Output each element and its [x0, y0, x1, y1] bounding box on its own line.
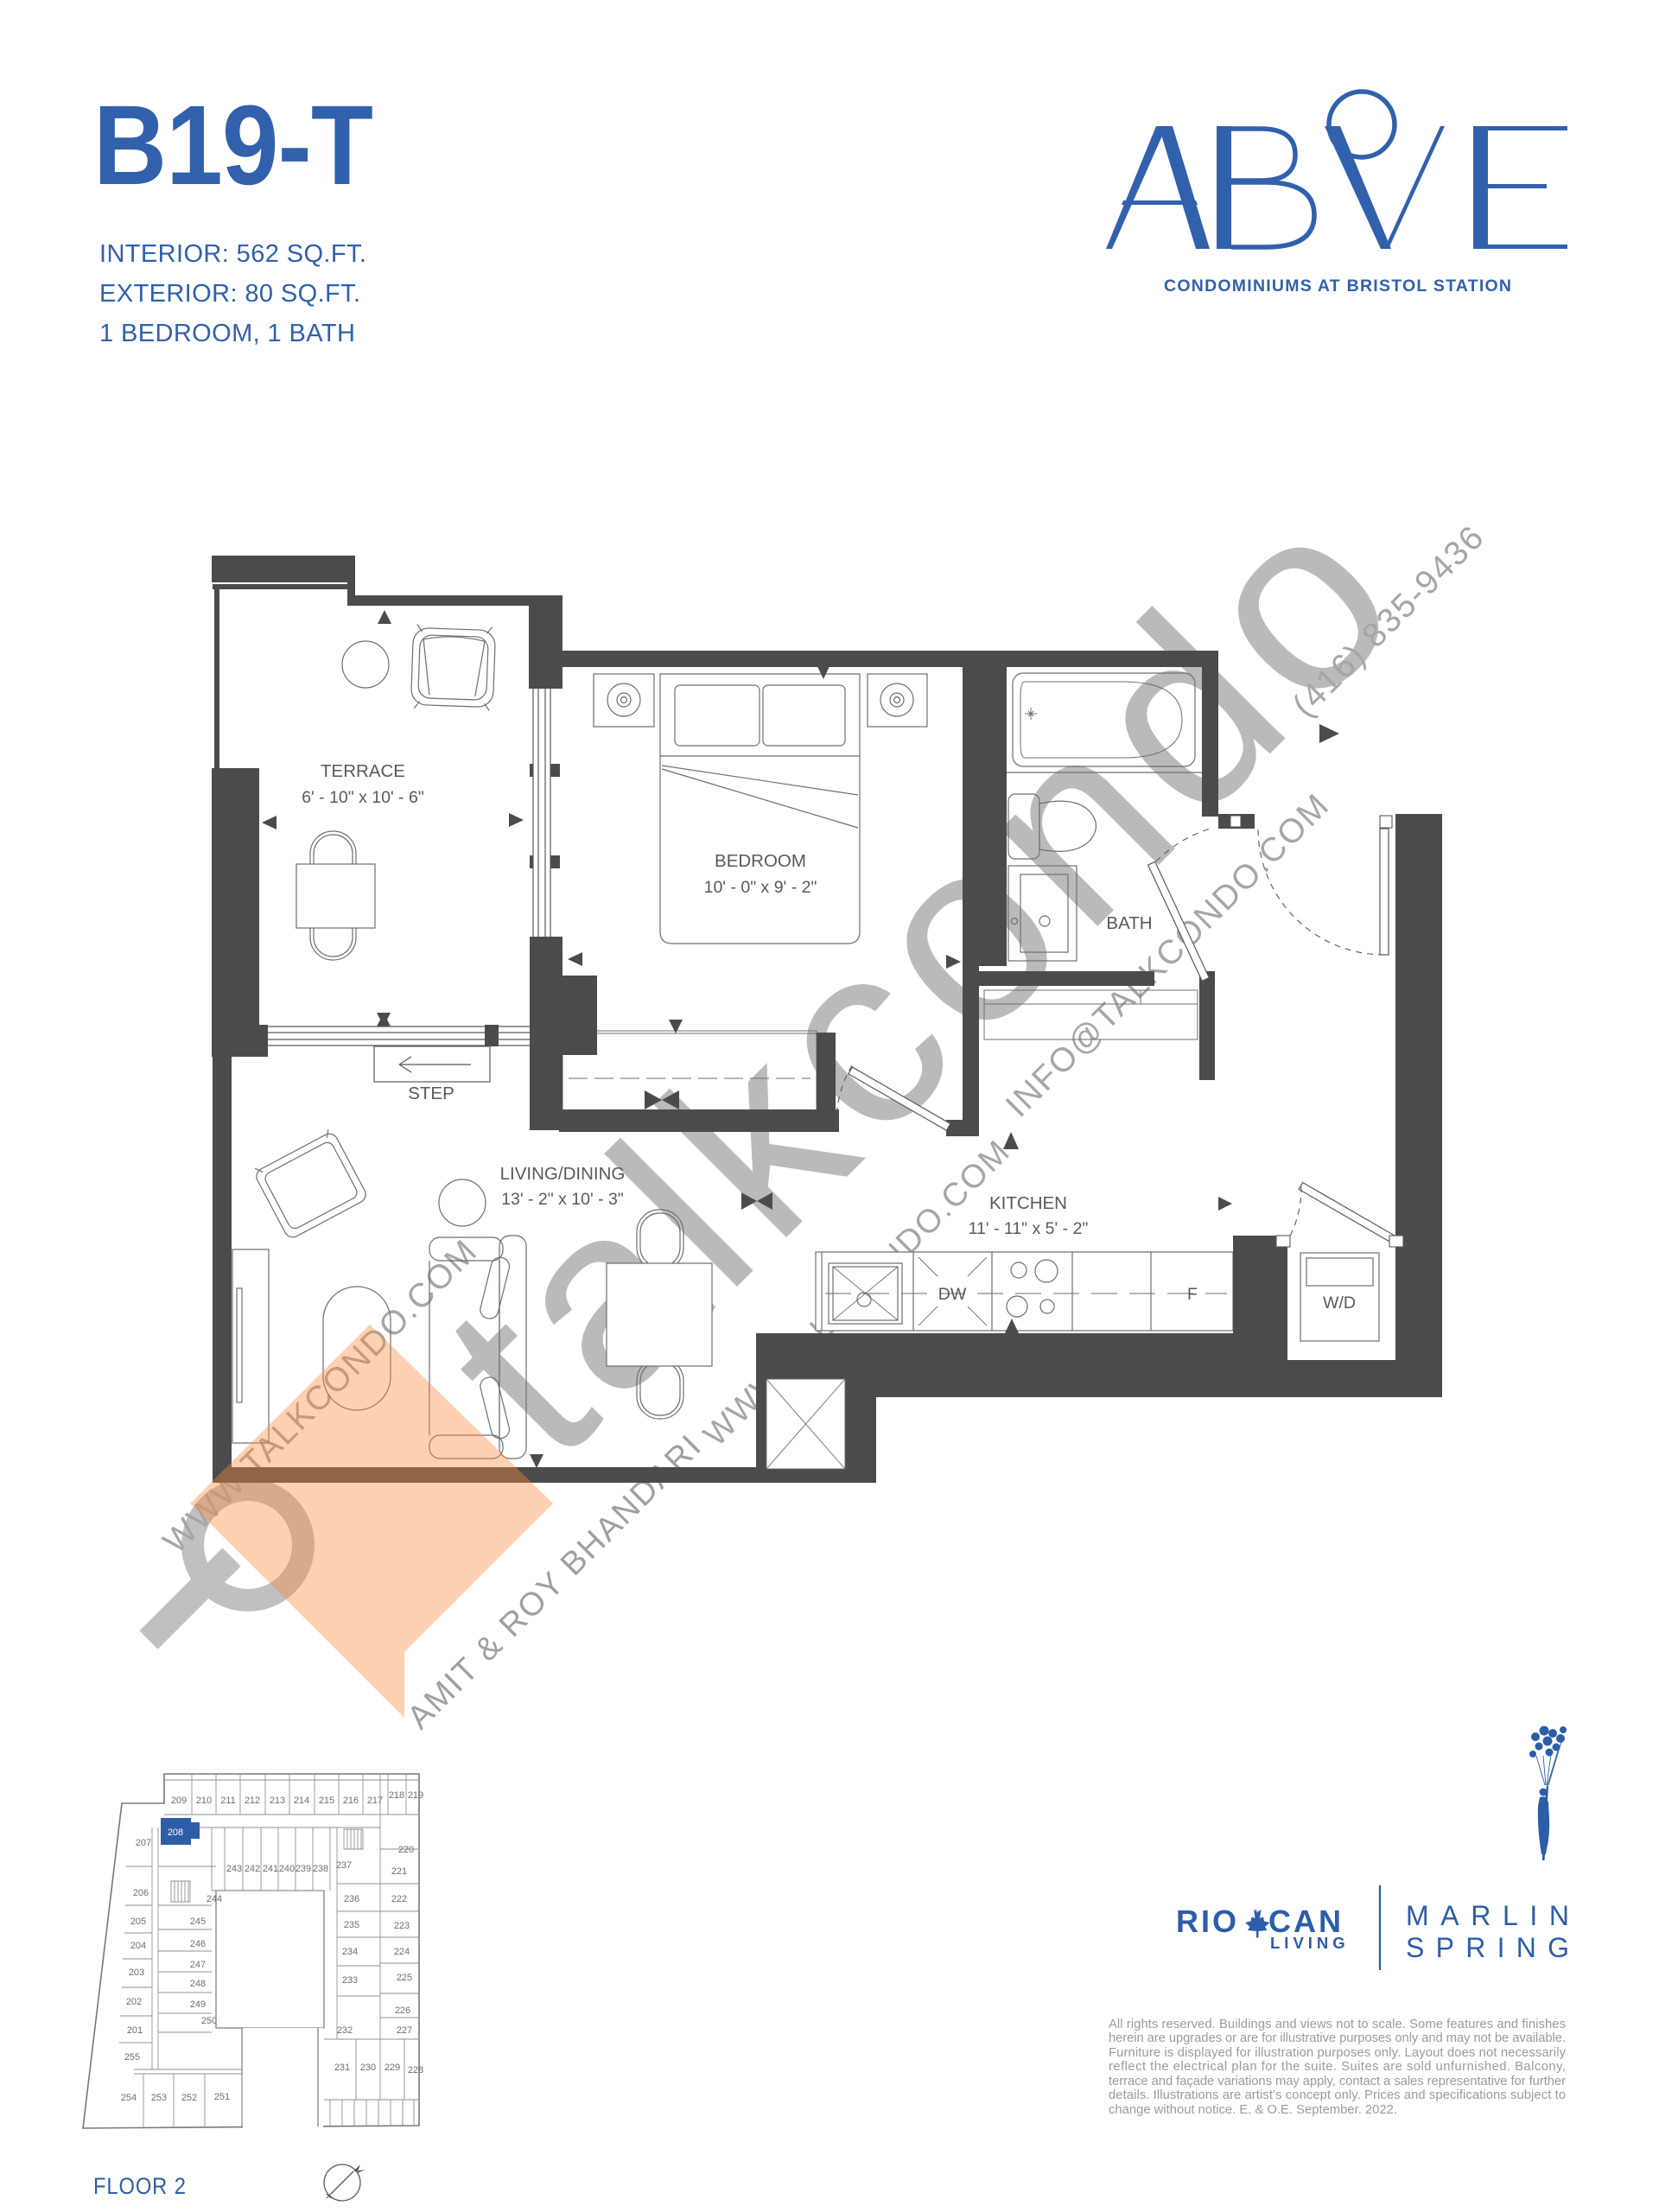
svg-text:13' - 2" x 10' - 3": 13' - 2" x 10' - 3": [501, 1190, 624, 1209]
svg-text:STEP: STEP: [408, 1084, 454, 1103]
svg-text:230: 230: [360, 2063, 376, 2073]
svg-text:203: 203: [129, 1967, 144, 1978]
svg-text:KITCHEN: KITCHEN: [989, 1193, 1067, 1213]
svg-text:220: 220: [398, 1845, 414, 1855]
svg-text:INTERIOR: 562 SQ.FT.: INTERIOR: 562 SQ.FT.: [99, 240, 366, 268]
svg-text:246: 246: [190, 1939, 206, 1949]
svg-text:227: 227: [397, 2025, 412, 2036]
svg-text:BATH: BATH: [1106, 913, 1152, 933]
svg-text:All rights reserved. Buildings: All rights reserved. Buildings and views…: [1109, 2018, 1566, 2031]
svg-text:206: 206: [133, 1888, 149, 1898]
svg-text:237: 237: [336, 1860, 352, 1871]
svg-text:242: 242: [245, 1864, 260, 1874]
svg-text:238: 238: [313, 1864, 328, 1874]
svg-text:249: 249: [190, 1999, 206, 2010]
svg-text:herein are upgrades or are for: herein are upgrades or are for illustrat…: [1109, 2031, 1566, 2045]
svg-text:215: 215: [319, 1796, 334, 1806]
svg-text:248: 248: [190, 1979, 206, 1989]
svg-text:214: 214: [294, 1796, 309, 1806]
svg-text:231: 231: [334, 2063, 350, 2073]
svg-text:201: 201: [127, 2025, 143, 2036]
svg-text:219: 219: [408, 1790, 423, 1801]
svg-text:226: 226: [395, 2005, 410, 2016]
svg-text:224: 224: [394, 1947, 410, 1957]
svg-text:213: 213: [270, 1796, 285, 1806]
svg-text:terrace and façade variations: terrace and façade variations may apply,…: [1109, 2075, 1566, 2088]
svg-text:FLOOR 2: FLOOR 2: [93, 2174, 187, 2200]
svg-text:233: 233: [342, 1975, 358, 1986]
svg-text:1 BEDROOM, 1 BATH: 1 BEDROOM, 1 BATH: [99, 320, 355, 347]
svg-text:217: 217: [367, 1796, 383, 1806]
svg-text:B19-T: B19-T: [93, 82, 372, 208]
svg-text:change without notice. E. & O.: change without notice. E. & O.E. Septemb…: [1109, 2103, 1397, 2117]
svg-text:205: 205: [130, 1916, 146, 1927]
svg-text:209: 209: [171, 1796, 187, 1806]
svg-text:EXTERIOR: 80 SQ.FT.: EXTERIOR: 80 SQ.FT.: [99, 280, 361, 308]
svg-text:225: 225: [397, 1973, 412, 1983]
svg-text:10' - 0" x 9' - 2": 10' - 0" x 9' - 2": [704, 878, 817, 897]
svg-text:234: 234: [342, 1947, 358, 1957]
svg-text:228: 228: [408, 2065, 423, 2075]
svg-text:6' - 10" x 10' - 6": 6' - 10" x 10' - 6": [302, 788, 424, 807]
svg-text:232: 232: [337, 2025, 353, 2036]
svg-text:229: 229: [385, 2063, 400, 2073]
svg-text:LIVING/DINING: LIVING/DINING: [500, 1164, 626, 1184]
svg-text:212: 212: [245, 1796, 260, 1806]
svg-text:210: 210: [196, 1796, 212, 1806]
svg-text:204: 204: [130, 1941, 146, 1951]
svg-text:CONDOMINIUMS AT BRISTOL STATIO: CONDOMINIUMS AT BRISTOL STATION: [1164, 276, 1511, 296]
svg-text:244: 244: [207, 1894, 222, 1904]
svg-text:W/D: W/D: [1323, 1294, 1356, 1313]
svg-text:218: 218: [389, 1790, 404, 1801]
svg-text:BEDROOM: BEDROOM: [715, 851, 806, 871]
svg-text:250: 250: [201, 2016, 217, 2026]
svg-text:236: 236: [344, 1894, 359, 1904]
svg-text:255: 255: [124, 2052, 140, 2063]
svg-text:TERRACE: TERRACE: [321, 761, 405, 781]
svg-text:details. Illustrations are art: details. Illustrations are artist’s conc…: [1109, 2088, 1566, 2102]
svg-text:211: 211: [220, 1796, 236, 1806]
svg-text:235: 235: [344, 1920, 359, 1930]
svg-text:253: 253: [151, 2093, 167, 2103]
svg-text:reflect the electrical plan fo: reflect the electrical plan for the suit…: [1109, 2060, 1566, 2074]
svg-text:252: 252: [181, 2093, 197, 2103]
svg-text:240: 240: [279, 1864, 295, 1874]
svg-text:222: 222: [391, 1894, 407, 1904]
svg-text:216: 216: [343, 1796, 359, 1806]
svg-text:223: 223: [394, 1921, 410, 1931]
svg-text:11' - 11" x 5' - 2": 11' - 11" x 5' - 2": [969, 1219, 1089, 1238]
svg-text:241: 241: [263, 1864, 278, 1874]
svg-text:DW: DW: [938, 1285, 967, 1304]
svg-text:251: 251: [214, 2092, 230, 2102]
svg-text:207: 207: [136, 1838, 151, 1848]
svg-text:RIO: RIO: [1176, 1904, 1239, 1939]
svg-text:F: F: [1187, 1285, 1198, 1304]
svg-text:239: 239: [296, 1864, 311, 1874]
svg-text:254: 254: [121, 2093, 137, 2103]
svg-text:202: 202: [126, 1997, 142, 2007]
svg-text:208: 208: [168, 1827, 183, 1838]
svg-text:221: 221: [391, 1866, 407, 1877]
svg-text:Furniture is displayed for ill: Furniture is displayed for illustration …: [1109, 2046, 1567, 2060]
svg-text:247: 247: [190, 1960, 206, 1970]
svg-text:LIVING: LIVING: [1270, 1934, 1350, 1952]
svg-text:245: 245: [190, 1916, 206, 1927]
svg-text:243: 243: [226, 1864, 242, 1874]
